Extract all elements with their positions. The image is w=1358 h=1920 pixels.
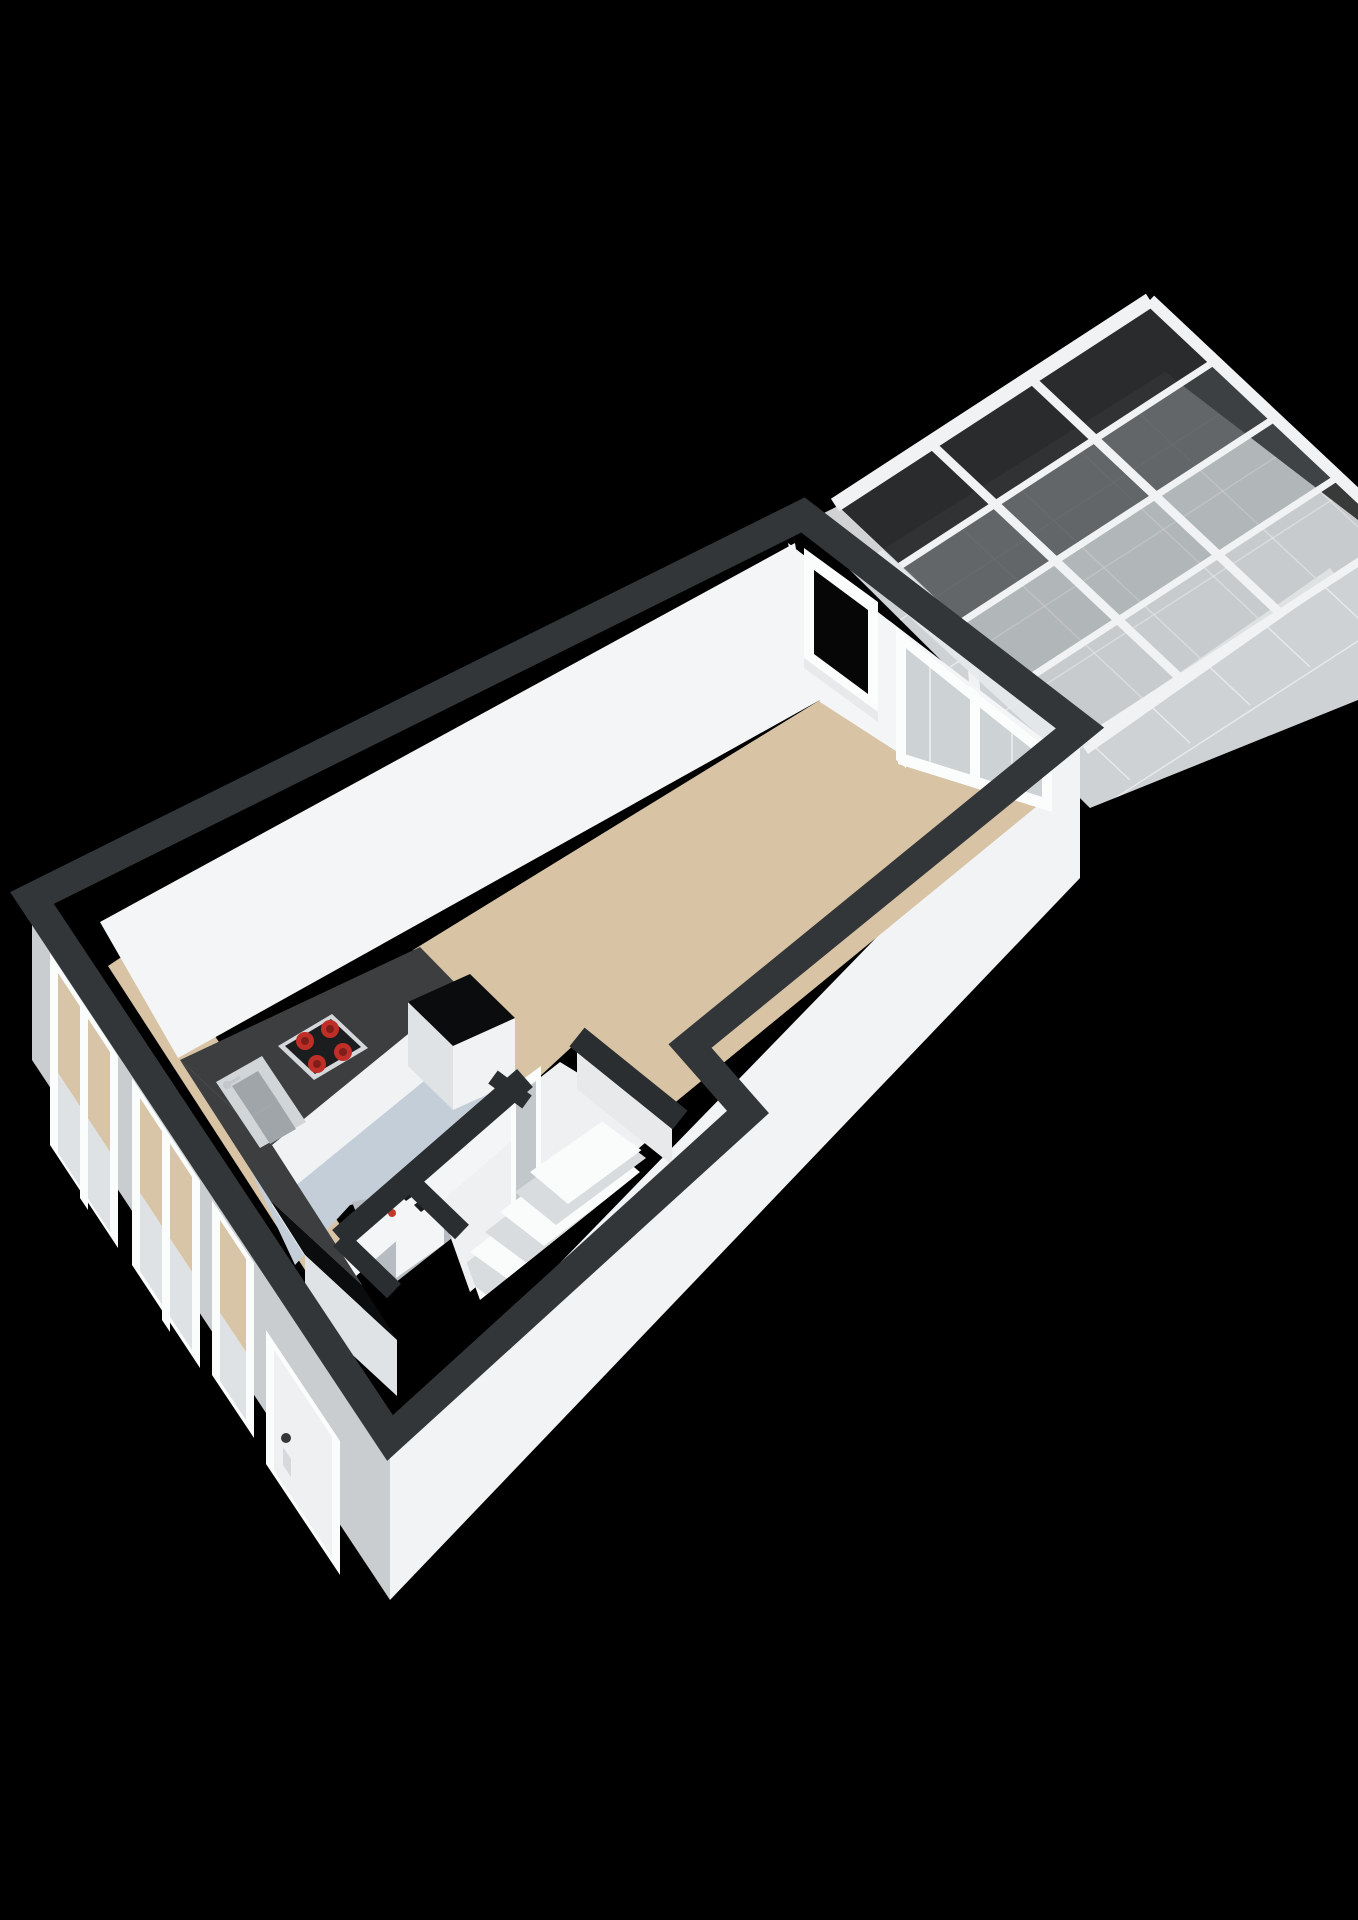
sliding-door-left-stile xyxy=(896,628,906,768)
burner-core xyxy=(301,1037,309,1045)
window-mullion xyxy=(162,1131,170,1332)
sliding-door-center-stile xyxy=(970,686,980,790)
floorplan-viewport xyxy=(0,0,1358,1920)
floorplan-3d-canvas[interactable] xyxy=(0,0,1358,1920)
window-mullion xyxy=(80,1006,88,1210)
burner-core xyxy=(339,1048,347,1056)
entry-door-handle xyxy=(281,1433,291,1443)
burner-core xyxy=(326,1025,334,1033)
burner-core xyxy=(313,1060,321,1068)
